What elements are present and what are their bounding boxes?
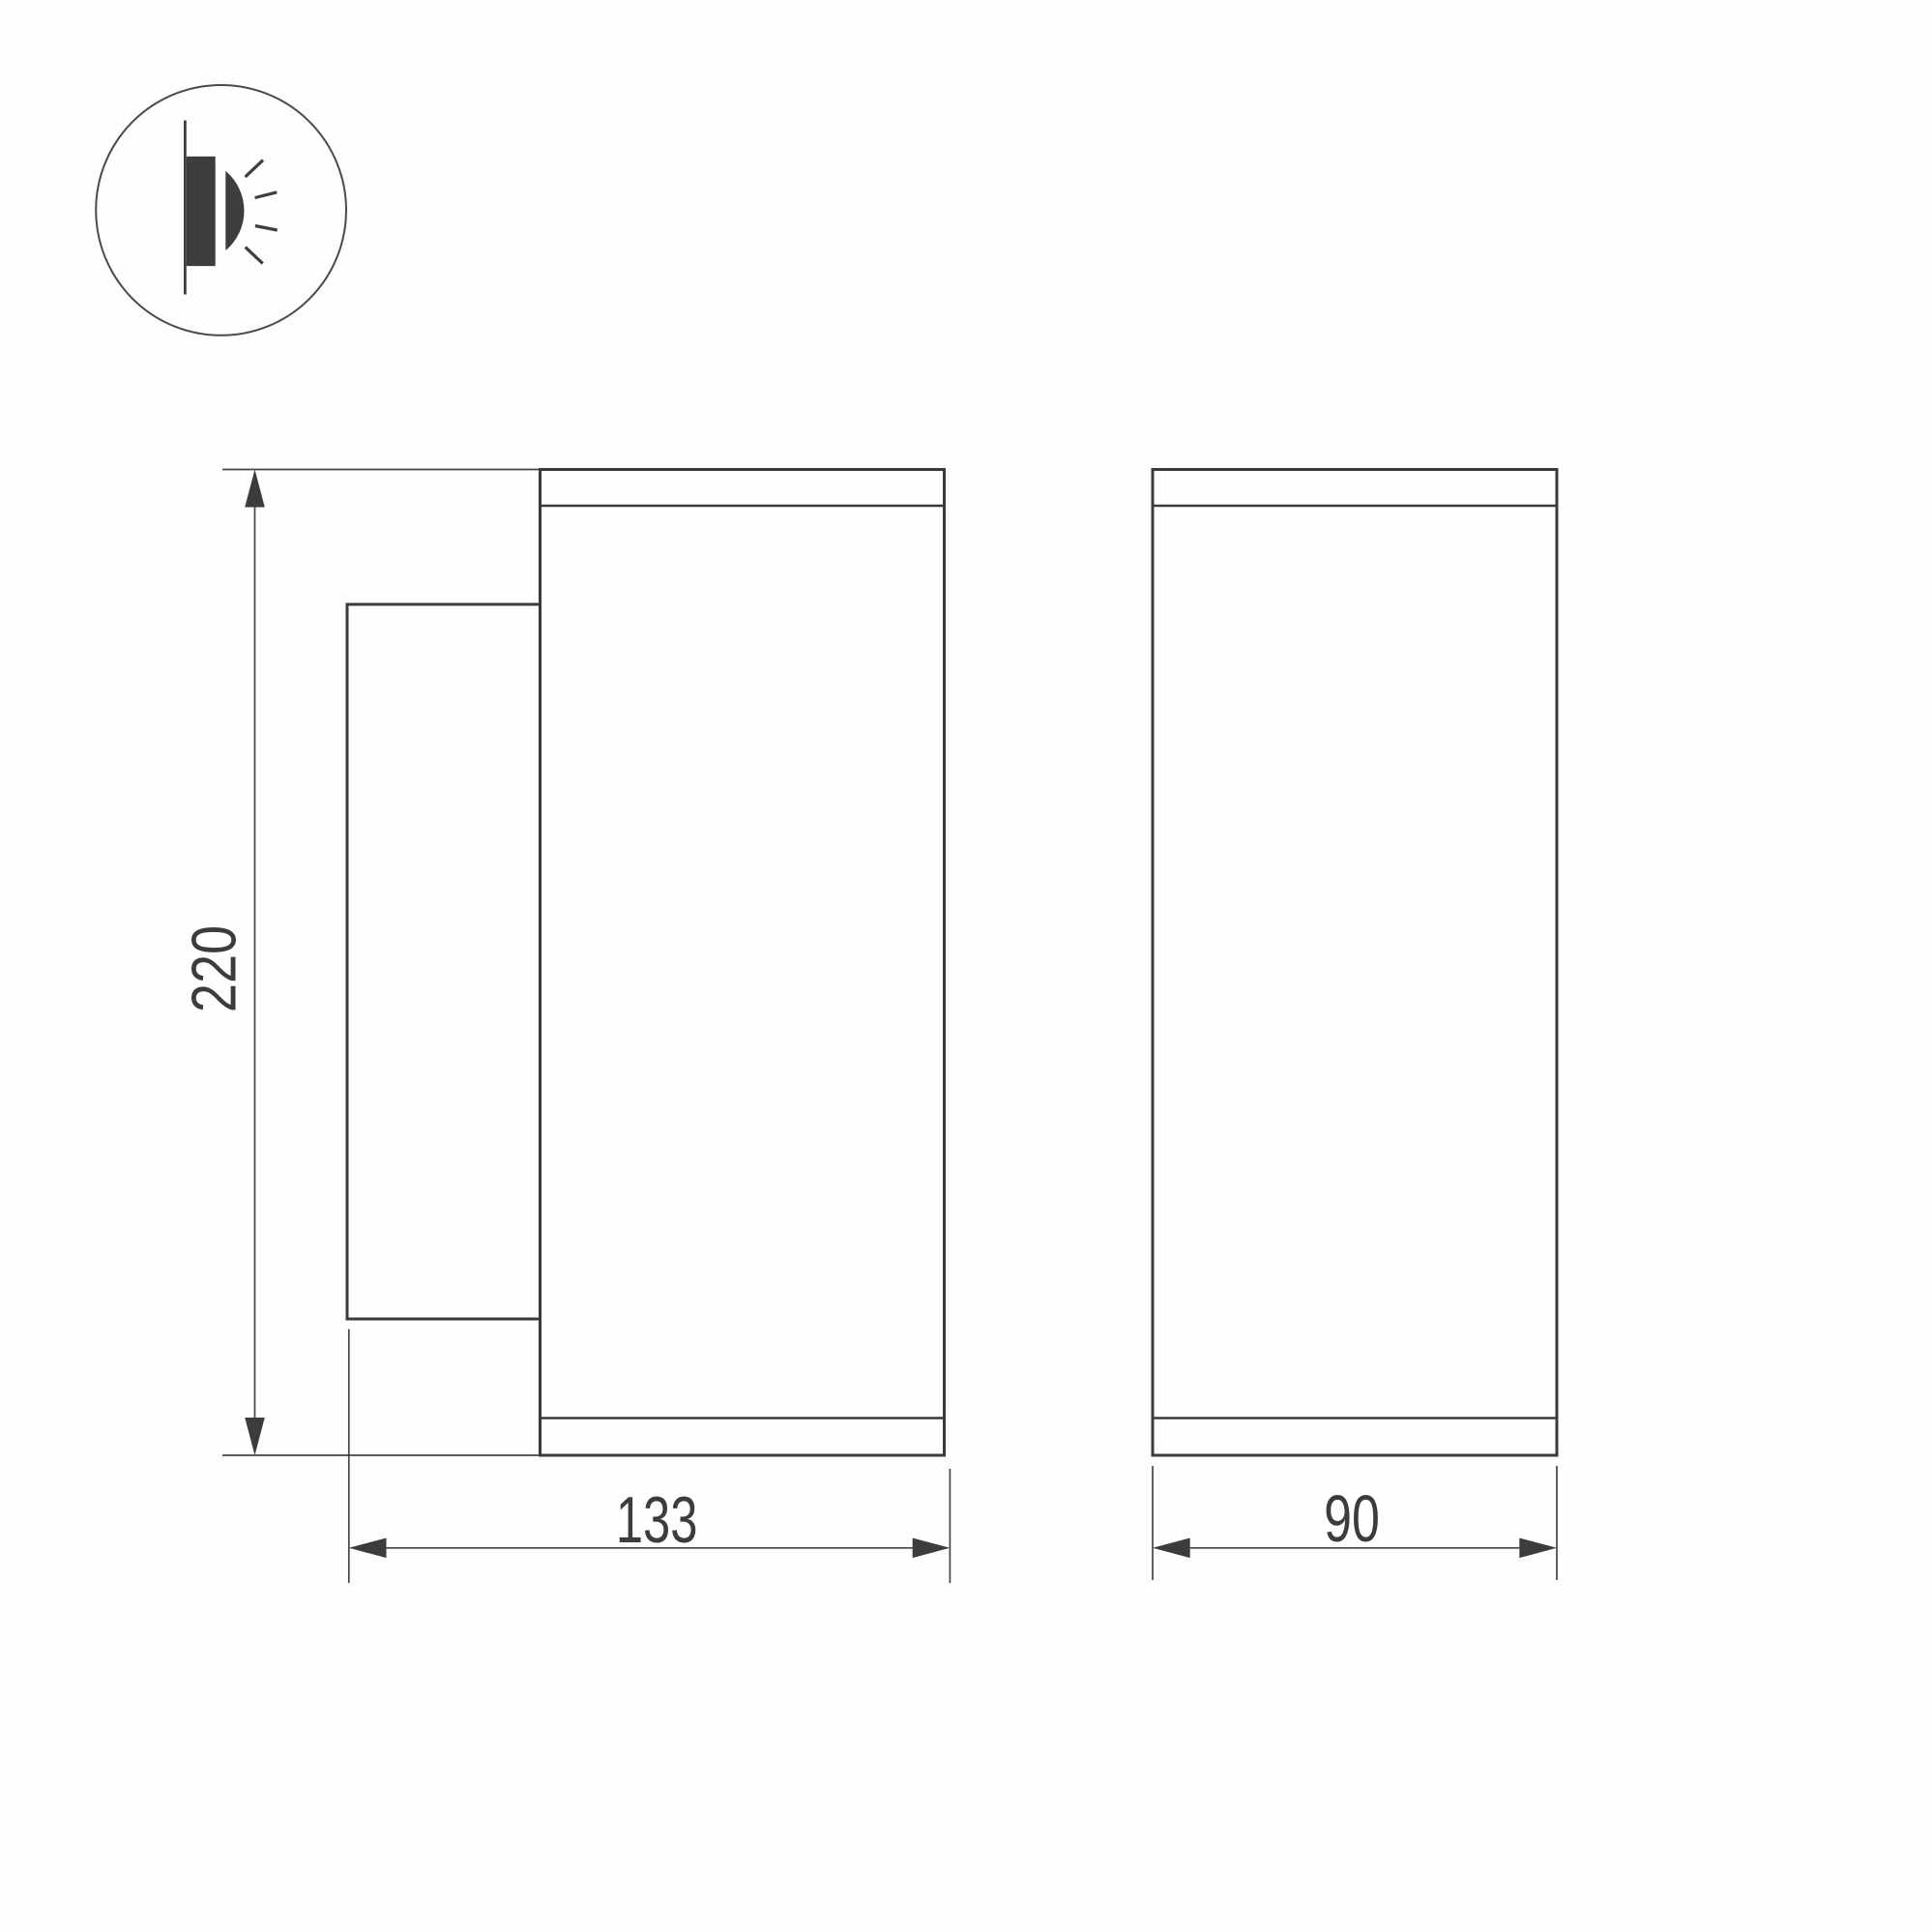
svg-text:220: 220 <box>179 925 249 1012</box>
svg-text:90: 90 <box>1324 1481 1380 1556</box>
svg-text:133: 133 <box>616 1483 698 1557</box>
